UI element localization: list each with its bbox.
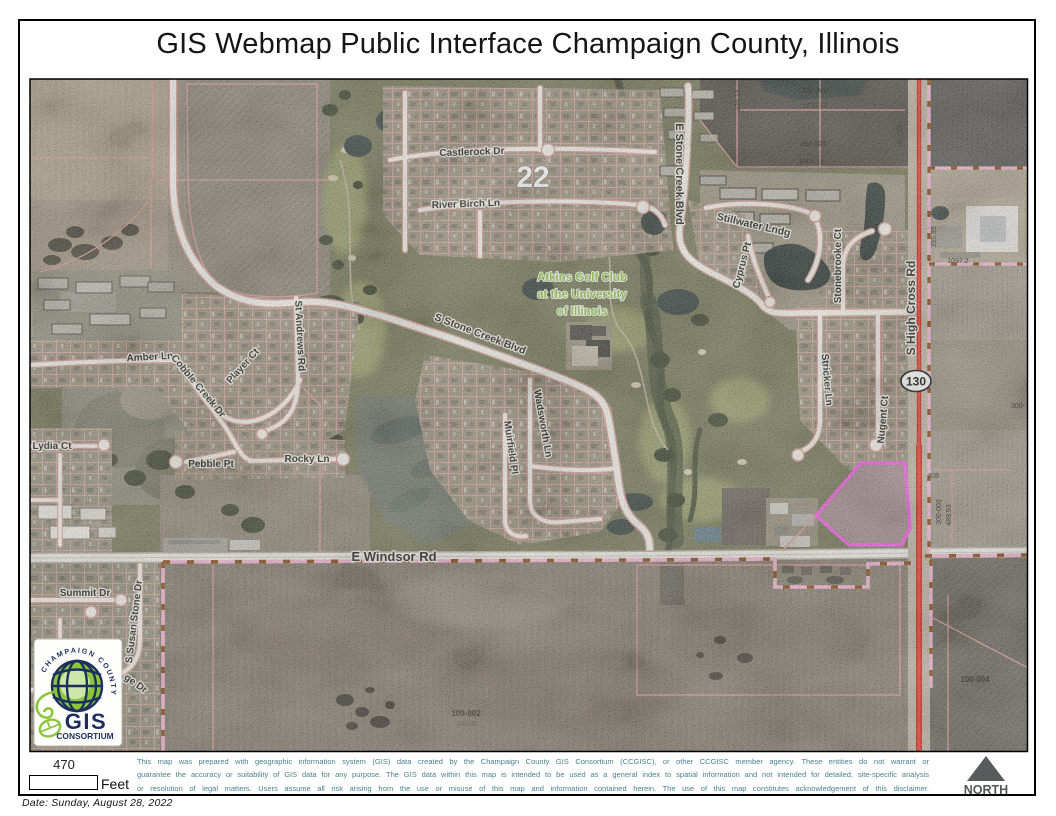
svg-text:CONSORTIUM: CONSORTIUM xyxy=(56,731,113,741)
svg-text:NORTH: NORTH xyxy=(964,783,1008,797)
